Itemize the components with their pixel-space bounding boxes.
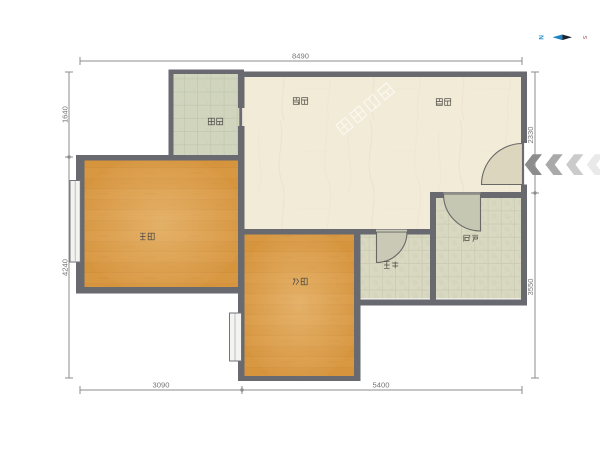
svg-text:4240: 4240 [60, 259, 69, 276]
svg-text:3550: 3550 [526, 279, 535, 296]
svg-text:5400: 5400 [373, 381, 390, 390]
svg-text:1640: 1640 [60, 106, 69, 123]
svg-text:2330: 2330 [526, 127, 535, 144]
svg-text:S: S [581, 35, 587, 39]
svg-text:8490: 8490 [292, 51, 309, 60]
svg-text:N: N [537, 35, 544, 40]
svg-text:3090: 3090 [153, 381, 170, 390]
